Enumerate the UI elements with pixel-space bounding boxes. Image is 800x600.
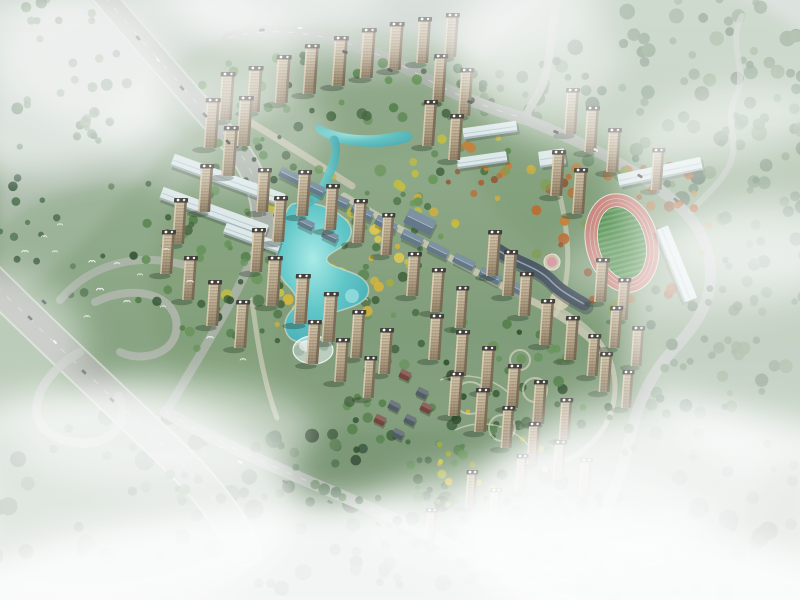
scene-canvas (0, 0, 800, 600)
aerial-rendering-residential-masterplan (0, 0, 800, 600)
haze-tint-overlay (0, 0, 800, 600)
